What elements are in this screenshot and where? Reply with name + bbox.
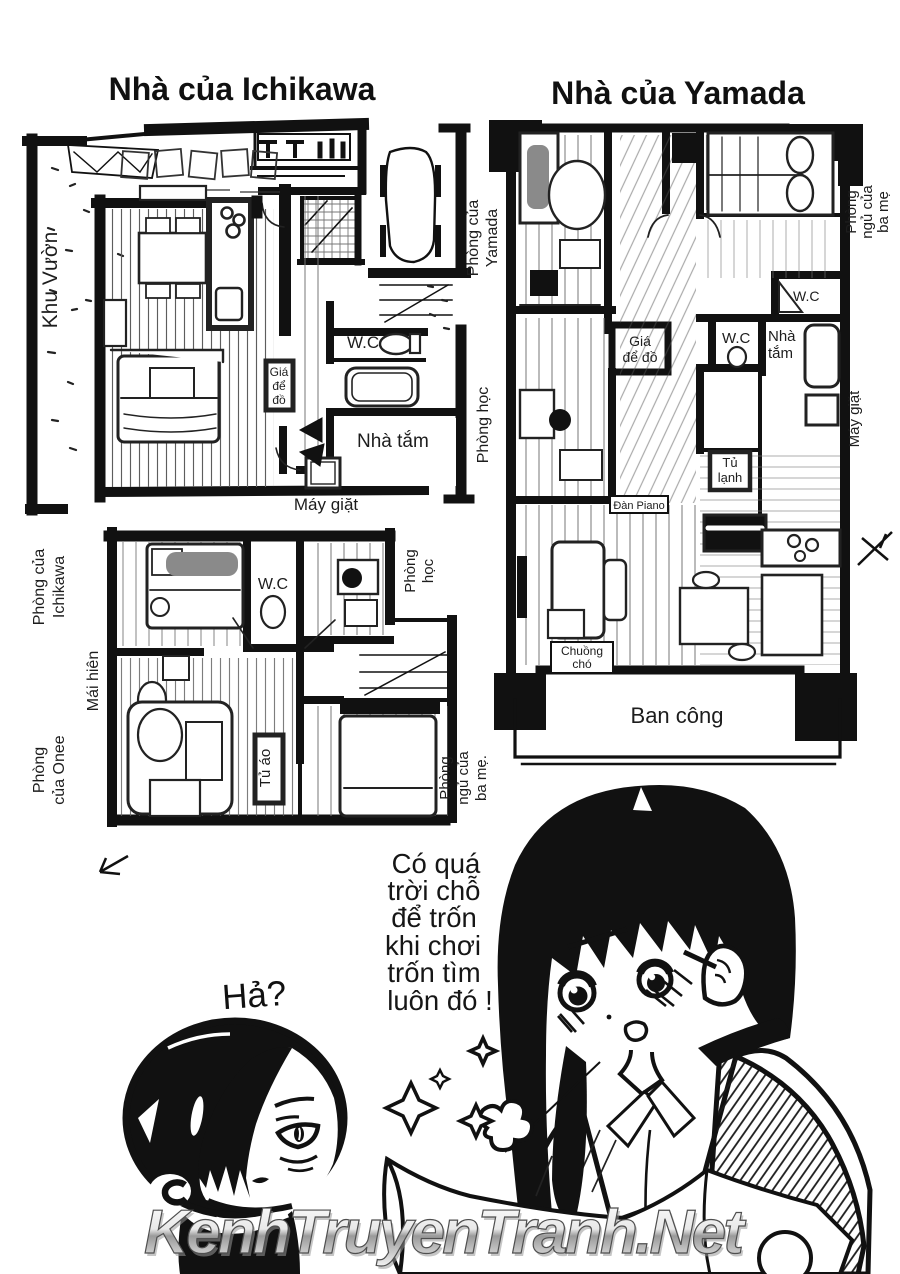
svg-text:Phòng: Phòng	[843, 190, 860, 233]
svg-text:Hả?: Hả?	[221, 974, 288, 1017]
svg-text:Phòng của: Phòng của	[31, 549, 48, 626]
svg-text:Nhà của Yamada: Nhà của Yamada	[551, 75, 805, 111]
svg-text:Đàn Piano: Đàn Piano	[613, 500, 664, 512]
svg-text:Phòng: Phòng	[437, 756, 454, 799]
svg-text:lạnh: lạnh	[718, 470, 743, 485]
svg-text:luôn đó !: luôn đó !	[387, 985, 493, 1016]
svg-text:để trốn: để trốn	[391, 902, 477, 933]
svg-text:Tủ: Tủ	[722, 455, 737, 470]
svg-text:Ban công: Ban công	[631, 703, 724, 728]
svg-text:đồ: đồ	[272, 393, 286, 407]
svg-text:chó: chó	[572, 657, 592, 671]
svg-text:W.C: W.C	[347, 333, 379, 352]
svg-text:Phòng: Phòng	[402, 549, 419, 592]
svg-text:của Onee: của Onee	[51, 735, 68, 804]
svg-text:ba mẹ.: ba mẹ.	[473, 755, 490, 801]
svg-text:ngủ của: ngủ của	[455, 751, 472, 805]
svg-text:Nhà: Nhà	[768, 328, 796, 345]
svg-text:W.C: W.C	[722, 330, 750, 347]
svg-text:W.C: W.C	[258, 576, 288, 593]
svg-text:Máy giặt: Máy giặt	[294, 495, 359, 514]
svg-text:để: để	[272, 379, 286, 393]
svg-text:ngủ của: ngủ của	[859, 185, 876, 239]
svg-text:W.C: W.C	[793, 288, 819, 304]
svg-text:tắm: tắm	[768, 345, 793, 362]
svg-text:Nhà tắm: Nhà tắm	[357, 430, 429, 452]
svg-text:Nhà của Ichikawa: Nhà của Ichikawa	[109, 71, 376, 107]
svg-text:học: học	[420, 558, 437, 583]
svg-text:Phòng học: Phòng học	[475, 387, 492, 464]
svg-text:trốn tìm: trốn tìm	[387, 957, 480, 988]
svg-text:Khu Vườn: Khu Vườn	[39, 232, 62, 329]
svg-text:để đồ: để đồ	[622, 349, 657, 365]
svg-text:Máy giặt: Máy giặt	[846, 390, 863, 448]
svg-text:Giá: Giá	[629, 333, 651, 349]
svg-text:Tủ áo: Tủ áo	[257, 749, 274, 787]
svg-text:ba mẹ: ba mẹ	[875, 191, 892, 233]
svg-text:KenhTruyenTranh.Net: KenhTruyenTranh.Net	[144, 1198, 746, 1267]
svg-text:Phòng của: Phòng của	[465, 200, 482, 277]
svg-text:Ichikawa: Ichikawa	[51, 556, 68, 618]
svg-text:Giá: Giá	[270, 365, 289, 379]
svg-text:Mái hiên: Mái hiên	[85, 651, 102, 711]
svg-text:Chuồng: Chuồng	[561, 644, 603, 658]
svg-text:Yamada: Yamada	[484, 209, 501, 268]
svg-text:Phòng: Phòng	[31, 747, 48, 793]
